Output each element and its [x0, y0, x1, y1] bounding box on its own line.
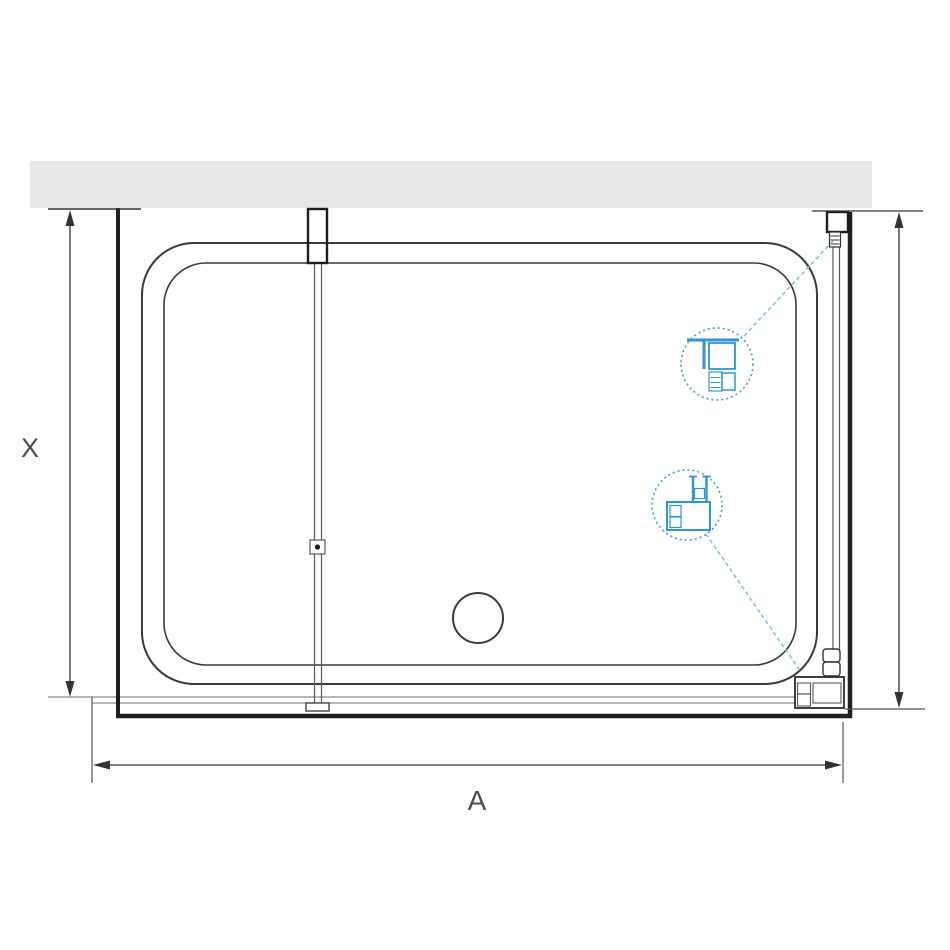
dimension-x: X	[21, 209, 141, 697]
shower-tray	[142, 243, 817, 684]
right-glass-panel	[795, 212, 848, 708]
wall	[30, 161, 872, 208]
detail-callout-floor-profile	[652, 470, 722, 540]
center-glass-top-bracket	[308, 209, 327, 263]
leader-line-top-detail	[742, 241, 833, 338]
bottom-clamp-upper	[823, 649, 840, 662]
center-glass-connector-dot	[315, 544, 320, 549]
threshold-lines	[48, 697, 795, 703]
shower-enclosure-plan-drawing: X A	[0, 0, 950, 950]
right-glass-top-clamp	[830, 232, 841, 247]
right-glass-top-bracket	[827, 212, 848, 232]
arrow-down-icon	[66, 681, 75, 697]
right-glass-bottom-clamp	[823, 649, 840, 676]
leader-lines	[706, 241, 833, 672]
arrow-right-icon	[825, 761, 842, 770]
shower-tray-outer-edge	[142, 243, 817, 684]
arrow-up-icon	[66, 210, 75, 226]
drawing-svg: X A	[0, 0, 950, 950]
detail-callout-wall-profile	[681, 328, 753, 400]
drain	[453, 593, 503, 643]
arrow-up-icon	[895, 212, 904, 228]
bottom-clamp-lower	[823, 662, 840, 676]
dimension-x-label: X	[21, 433, 39, 463]
leader-line-bottom-detail	[706, 534, 801, 672]
arrow-left-icon	[93, 761, 110, 770]
dimension-a-label: A	[468, 785, 487, 816]
shower-tray-inner-edge	[164, 263, 796, 665]
dimension-right	[812, 211, 925, 709]
center-glass-panel	[306, 209, 329, 711]
right-glass-floor-base	[795, 677, 844, 708]
center-glass-foot	[306, 703, 329, 711]
arrow-down-icon	[895, 692, 904, 708]
